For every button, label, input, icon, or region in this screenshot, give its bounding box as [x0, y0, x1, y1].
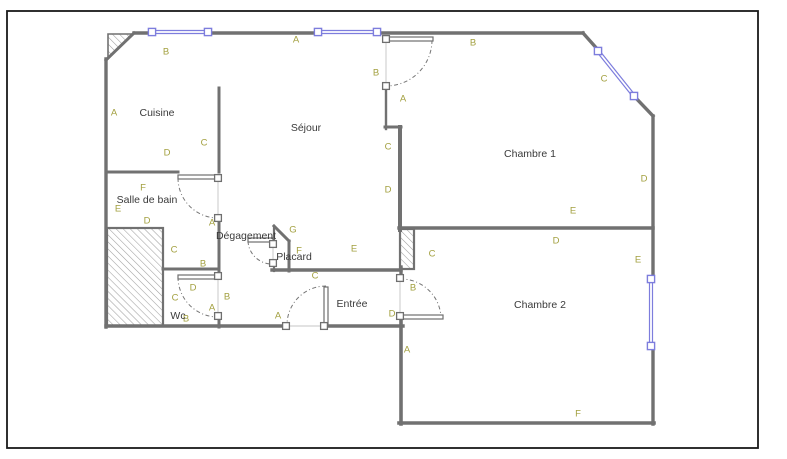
door-jamb-marker: [215, 273, 222, 280]
door-jamb-marker: [321, 323, 328, 330]
dimension-label: F: [140, 182, 146, 193]
dimension-label: D: [641, 173, 648, 184]
dimension-label: C: [312, 270, 319, 281]
door-leaf: [388, 37, 433, 41]
window-end-marker: [647, 275, 654, 282]
room-label-degagement: Dégagement: [216, 230, 276, 242]
window-end-marker: [630, 92, 637, 99]
room-label-cuisine: Cuisine: [139, 107, 174, 119]
door-jamb-marker: [397, 275, 404, 282]
room-label-placard: Placard: [276, 251, 312, 263]
dimension-label: C: [172, 292, 179, 303]
dimension-label: B: [373, 67, 379, 78]
window-end-marker: [148, 28, 155, 35]
window-end-marker: [204, 28, 211, 35]
window-end-marker: [314, 28, 321, 35]
dimension-label: D: [164, 147, 171, 158]
dimension-label: D: [144, 215, 151, 226]
floor-plan: BAACDBABCDCDEFEDACBGFECDECDCBABADBAFCuis…: [0, 0, 787, 459]
dimension-label: A: [209, 217, 216, 228]
dimension-label: D: [385, 184, 392, 195]
window-end-marker: [373, 28, 380, 35]
door-leaf: [178, 175, 218, 179]
room-label-entree: Entrée: [337, 298, 368, 310]
dimension-label: E: [570, 205, 576, 216]
dimension-label: E: [351, 243, 357, 254]
door-jamb-marker: [397, 313, 404, 320]
hatched-zone: [400, 229, 414, 269]
dimension-label: C: [601, 73, 608, 84]
door-jamb-marker: [283, 323, 290, 330]
dimension-label: C: [201, 137, 208, 148]
room-label-chambre-1: Chambre 1: [504, 148, 556, 160]
room-label-sejour: Séjour: [291, 122, 322, 134]
dimension-label: A: [400, 93, 407, 104]
dimension-label: A: [293, 34, 300, 45]
floor-plan-canvas: BAACDBABCDCDEFEDACBGFECDECDCBABADBAFCuis…: [0, 0, 787, 459]
door-jamb-marker: [215, 175, 222, 182]
dimension-label: D: [190, 282, 197, 293]
dimension-label: C: [429, 248, 436, 259]
dimension-label: E: [635, 254, 641, 265]
dimension-label: F: [575, 408, 581, 419]
dimension-label: B: [470, 37, 476, 48]
door-jamb-marker: [215, 313, 222, 320]
dimension-label: C: [171, 244, 178, 255]
door-leaf: [178, 275, 218, 279]
dimension-label: A: [404, 344, 411, 355]
room-label-salle-de-bain: Salle de bain: [117, 194, 178, 206]
dimension-label: A: [209, 302, 216, 313]
window-end-marker: [647, 342, 654, 349]
room-label-wc: Wc: [170, 310, 185, 322]
dimension-label: A: [111, 107, 118, 118]
window-end-marker: [594, 47, 601, 54]
dimension-label: G: [289, 224, 296, 235]
door-jamb-marker: [215, 215, 222, 222]
dimension-label: B: [224, 291, 230, 302]
dimension-label: B: [200, 258, 206, 269]
door-jamb-marker: [383, 83, 390, 90]
dimension-label: B: [410, 282, 416, 293]
dimension-label: C: [385, 141, 392, 152]
room-label-chambre-2: Chambre 2: [514, 299, 566, 311]
door-jamb-marker: [383, 36, 390, 43]
door-leaf: [324, 287, 328, 326]
dimension-label: D: [553, 235, 560, 246]
door-leaf: [402, 315, 443, 319]
dimension-label: D: [389, 308, 396, 319]
dimension-label: B: [163, 46, 169, 57]
dimension-label: A: [275, 310, 282, 321]
hatched-zone: [107, 228, 163, 326]
